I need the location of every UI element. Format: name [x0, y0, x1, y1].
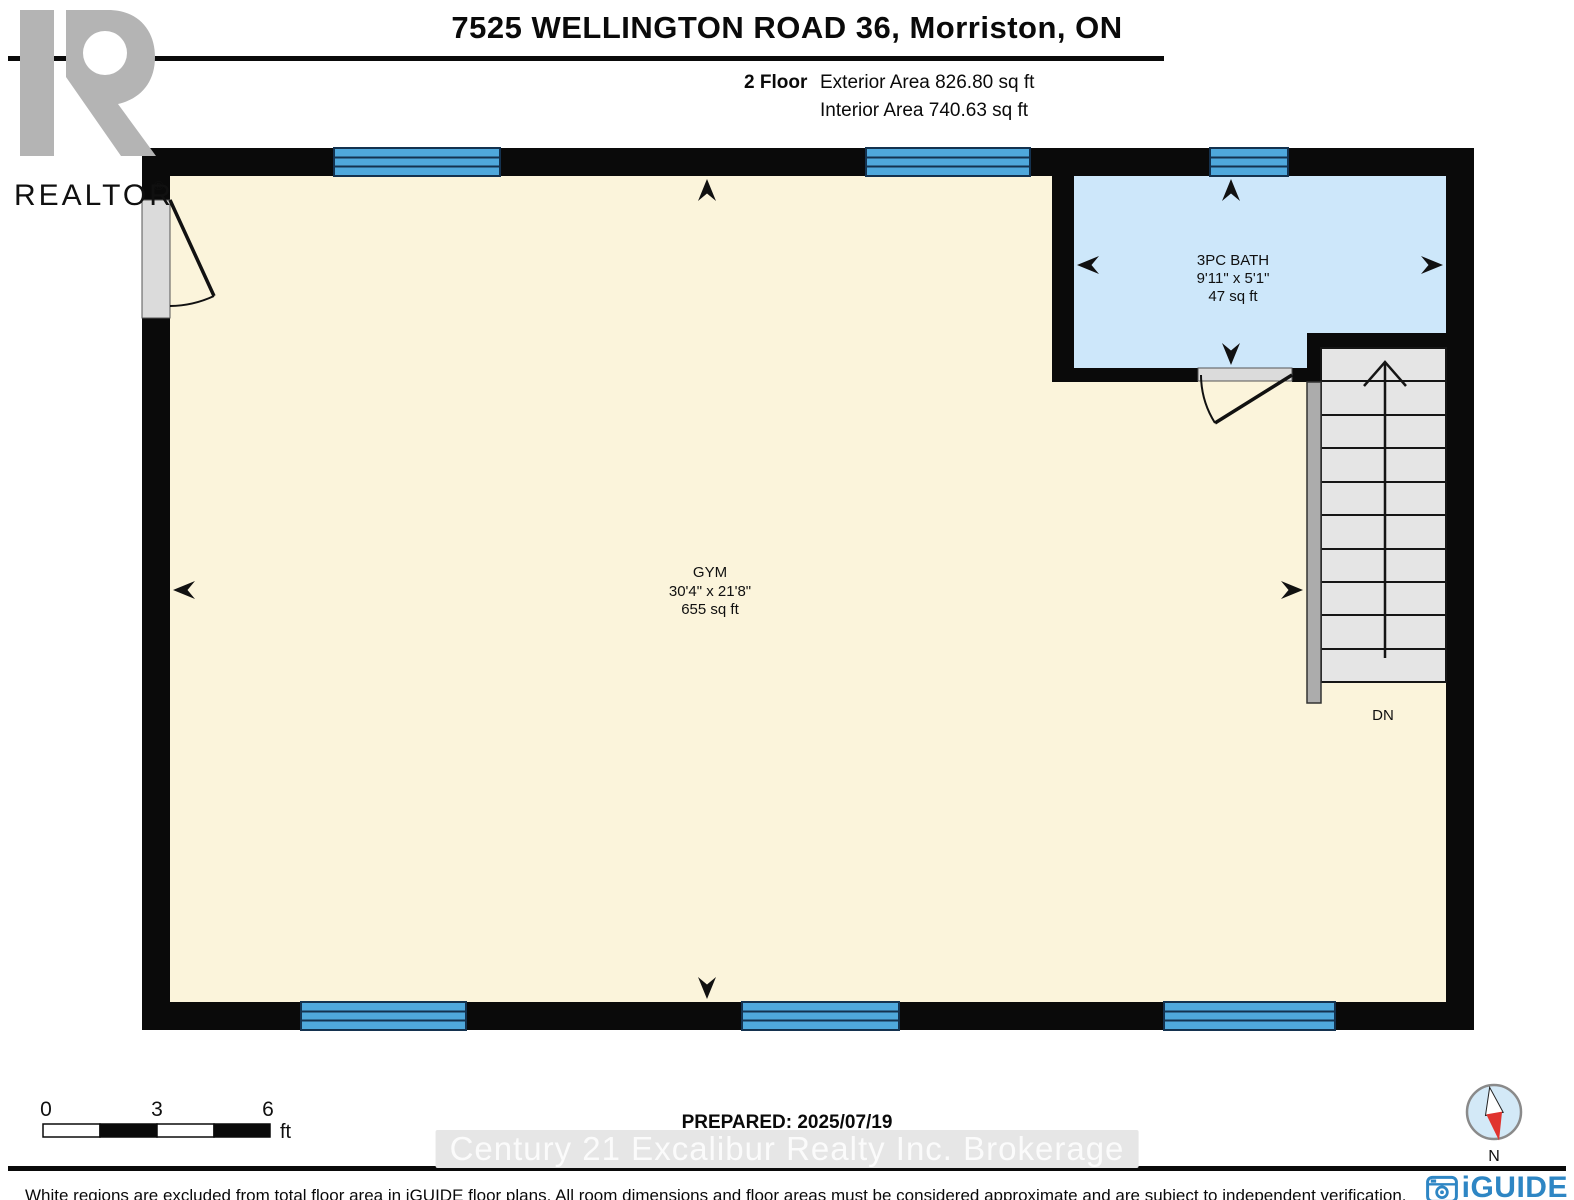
bath-area-label: 47 sq ft — [1208, 288, 1258, 305]
staircase: DN — [1307, 348, 1446, 724]
iguide-camera-icon — [1426, 1173, 1458, 1200]
floorplan-page: 7525 WELLINGTON ROAD 36, Morriston, ON 2… — [0, 0, 1574, 1200]
brokerage-watermark: Century 21 Excalibur Realty Inc. Brokera… — [436, 1130, 1139, 1168]
window-top-1 — [334, 148, 500, 176]
realtor-r-glyph: REALTOR ® — [14, 10, 174, 212]
iguide-logo: iGUIDE — [1426, 1171, 1568, 1200]
bath-door-sill — [1198, 368, 1292, 381]
disclaimer-text: White regions are excluded from total fl… — [25, 1186, 1407, 1200]
gym-area-label: 655 sq ft — [681, 601, 739, 618]
floorplan-drawing: DN GYM 30'4" x 21'8" 655 sq ft 3PC BATH … — [0, 0, 1574, 1200]
window-bottom-3 — [1164, 1002, 1335, 1030]
window-bath — [1210, 148, 1288, 176]
registered-mark: ® — [154, 178, 164, 193]
gym-name-label: GYM — [693, 564, 727, 581]
window-top-2 — [866, 148, 1030, 176]
iguide-wordmark: iGUIDE — [1462, 1171, 1568, 1200]
entry-door-sill — [142, 200, 170, 318]
window-bottom-2 — [742, 1002, 899, 1030]
stair-railing — [1307, 382, 1321, 703]
stairs-dn-label: DN — [1372, 707, 1394, 724]
realtor-logo: REALTOR ® — [6, 4, 186, 216]
bath-name-label: 3PC BATH — [1197, 252, 1269, 269]
compass-north-label: N — [1488, 1148, 1500, 1165]
gym-dimensions-label: 30'4" x 21'8" — [669, 583, 751, 600]
window-bottom-1 — [301, 1002, 466, 1030]
bath-dimensions-label: 9'11" x 5'1" — [1197, 270, 1270, 287]
realtor-text: REALTOR — [14, 179, 174, 212]
